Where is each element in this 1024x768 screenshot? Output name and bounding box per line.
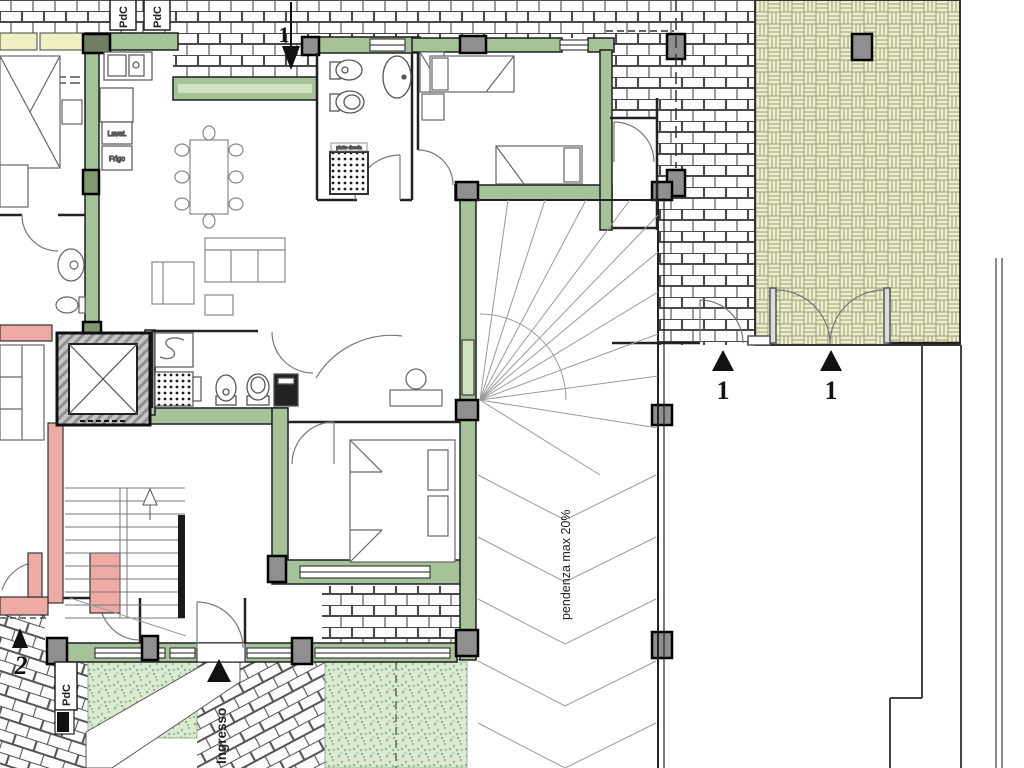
sofa: [205, 238, 285, 282]
neighbor-wc-tank: [79, 297, 85, 313]
bed-double-pillow-2: [428, 496, 448, 536]
pdc-unit: [57, 712, 69, 732]
bathroom-small: [216, 374, 298, 406]
pink-wall-sw-east: [90, 553, 120, 613]
neighbor-cabinet: [0, 165, 28, 207]
kitchen-sink-bowl1: [108, 55, 126, 76]
stair-wall: [178, 515, 185, 618]
pillar-ramp-w1: [456, 182, 478, 200]
kitchen-fridge-label: Frigo: [109, 156, 125, 163]
pillar-band-2: [142, 636, 158, 660]
marker-arrow-up-icon-2: [820, 350, 842, 371]
terrace-parapet-inner: [178, 84, 312, 93]
bidet: [336, 60, 362, 80]
ramp-wall-window: [462, 340, 474, 395]
brick-above-landing: [612, 98, 657, 118]
wall-ramp-west: [460, 198, 476, 660]
pdc-label-top-1: PdC: [118, 6, 130, 28]
neighbor-nightstand: [62, 100, 82, 124]
floor-plan-canvas: Lavat. Frigo piatto doccia: [0, 0, 1024, 768]
brick-diagonal-entrance: [236, 662, 325, 768]
washbasin: [383, 56, 411, 98]
pillar-west-mid: [83, 170, 99, 194]
neighbor-wc: [56, 297, 78, 313]
pillar-nw: [83, 34, 110, 53]
courtyard-door-leaf-left: [770, 288, 776, 343]
door-gap-entrance: [197, 643, 245, 662]
pink-wall-sw-bottom: [0, 597, 48, 615]
pillar-terrace: [302, 37, 319, 55]
bidet2: [216, 375, 236, 401]
pdc-label-bottom: PdC: [61, 684, 73, 706]
kitchen-stove: [155, 372, 193, 406]
pdc-label-top-2: PdC: [152, 6, 164, 28]
elevator: [57, 333, 150, 425]
coffee-table: [205, 295, 233, 315]
nightstand-east: [422, 94, 444, 120]
dresser: [390, 390, 442, 406]
pillar-ramp-e3: [652, 632, 672, 658]
ramp-slope-label: pendenza max 20%: [559, 510, 573, 621]
pillar-bedroom-sw: [268, 556, 286, 582]
dining-table: [190, 140, 228, 214]
pillar-ramp-w3: [456, 630, 478, 656]
window-sill-yellow-1: [0, 33, 37, 50]
window-sill-yellow-2: [40, 33, 83, 50]
kitchen-cabinet: [100, 88, 133, 122]
pillar-band-3: [292, 638, 312, 664]
floor-plan-drawing: Lavat. Frigo piatto doccia: [0, 0, 1024, 768]
courtyard-door-leaf-right: [884, 288, 890, 343]
hallway-interior: [317, 200, 460, 408]
pillar-ramp-e2: [652, 405, 672, 425]
pillar-ramp-e1: [652, 182, 672, 200]
ingresso-label: Ingresso: [214, 708, 229, 764]
marker-bottom-left-num: 2: [14, 651, 28, 680]
pink-wall-west: [0, 325, 52, 341]
armchair: [152, 262, 194, 304]
pillar-ramp-w2: [456, 400, 478, 420]
marker-courtyard-right: 1: [820, 350, 842, 405]
wall-bedroom-east-east: [600, 50, 612, 230]
brick-paving-east-strip: [657, 98, 755, 345]
marker-courtyard-left: 1: [712, 350, 734, 405]
kitchen-sink-drain: [133, 62, 139, 68]
pink-wall-stairwell: [48, 423, 63, 603]
wall-bedroom-south-west: [272, 408, 288, 566]
pillar-courtyard: [852, 34, 872, 60]
bed1-pillow: [432, 58, 448, 90]
pillar-band-1: [47, 638, 67, 664]
bed-double-pillow-1: [428, 450, 448, 490]
marker-section-top-num: 1: [279, 22, 290, 47]
marker-courtyard-right-num: 1: [825, 376, 838, 405]
washing-machine-slot: [278, 378, 294, 384]
marker-courtyard-left-num: 1: [717, 376, 730, 405]
marker-arrow-up-icon-1: [712, 350, 734, 371]
courtyard-door-sill: [748, 336, 770, 345]
pink-wall-sw-stub: [28, 553, 42, 597]
shower-label: piatto doccia: [336, 145, 362, 150]
bed2-pillow: [564, 148, 580, 182]
bottom-rooms-interior: [45, 596, 285, 645]
pillar-bedroom-north: [460, 36, 486, 53]
kitchen-stove-knobs: [193, 377, 201, 401]
shower-tray: [330, 152, 368, 194]
kitchen-washer-label: Lavat.: [107, 131, 126, 138]
dresser-mirror: [406, 369, 426, 389]
